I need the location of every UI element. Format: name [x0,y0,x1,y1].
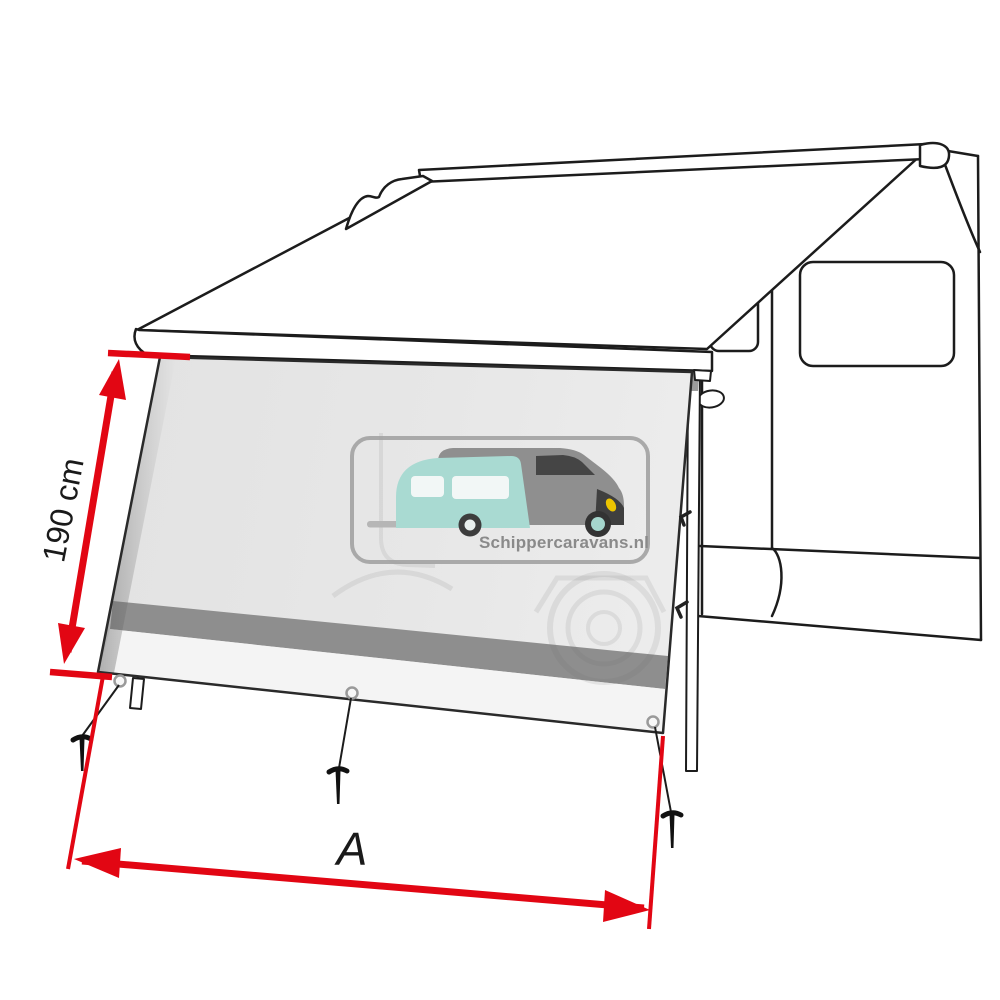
watermark-caravan-icon [396,456,530,537]
lead-bar-bracket [694,370,711,381]
vehicle-window [800,262,954,366]
tent-peg-icon-right [663,813,681,848]
awning-front-panel-diagram: 190 cm A Schippercaravans.nl [0,0,1000,1000]
awning-case-end-cap [920,143,949,168]
tent-peg-icon-middle [329,769,347,804]
eyelet-left [115,676,126,687]
eyelet-middle [347,688,358,699]
eyelet-right [648,717,659,728]
support-leg-left [130,678,144,709]
watermark-site-text: Schippercaravans.nl [479,533,649,553]
diagram-drawing [0,0,1000,1000]
width-dimension-label: A [330,824,374,874]
